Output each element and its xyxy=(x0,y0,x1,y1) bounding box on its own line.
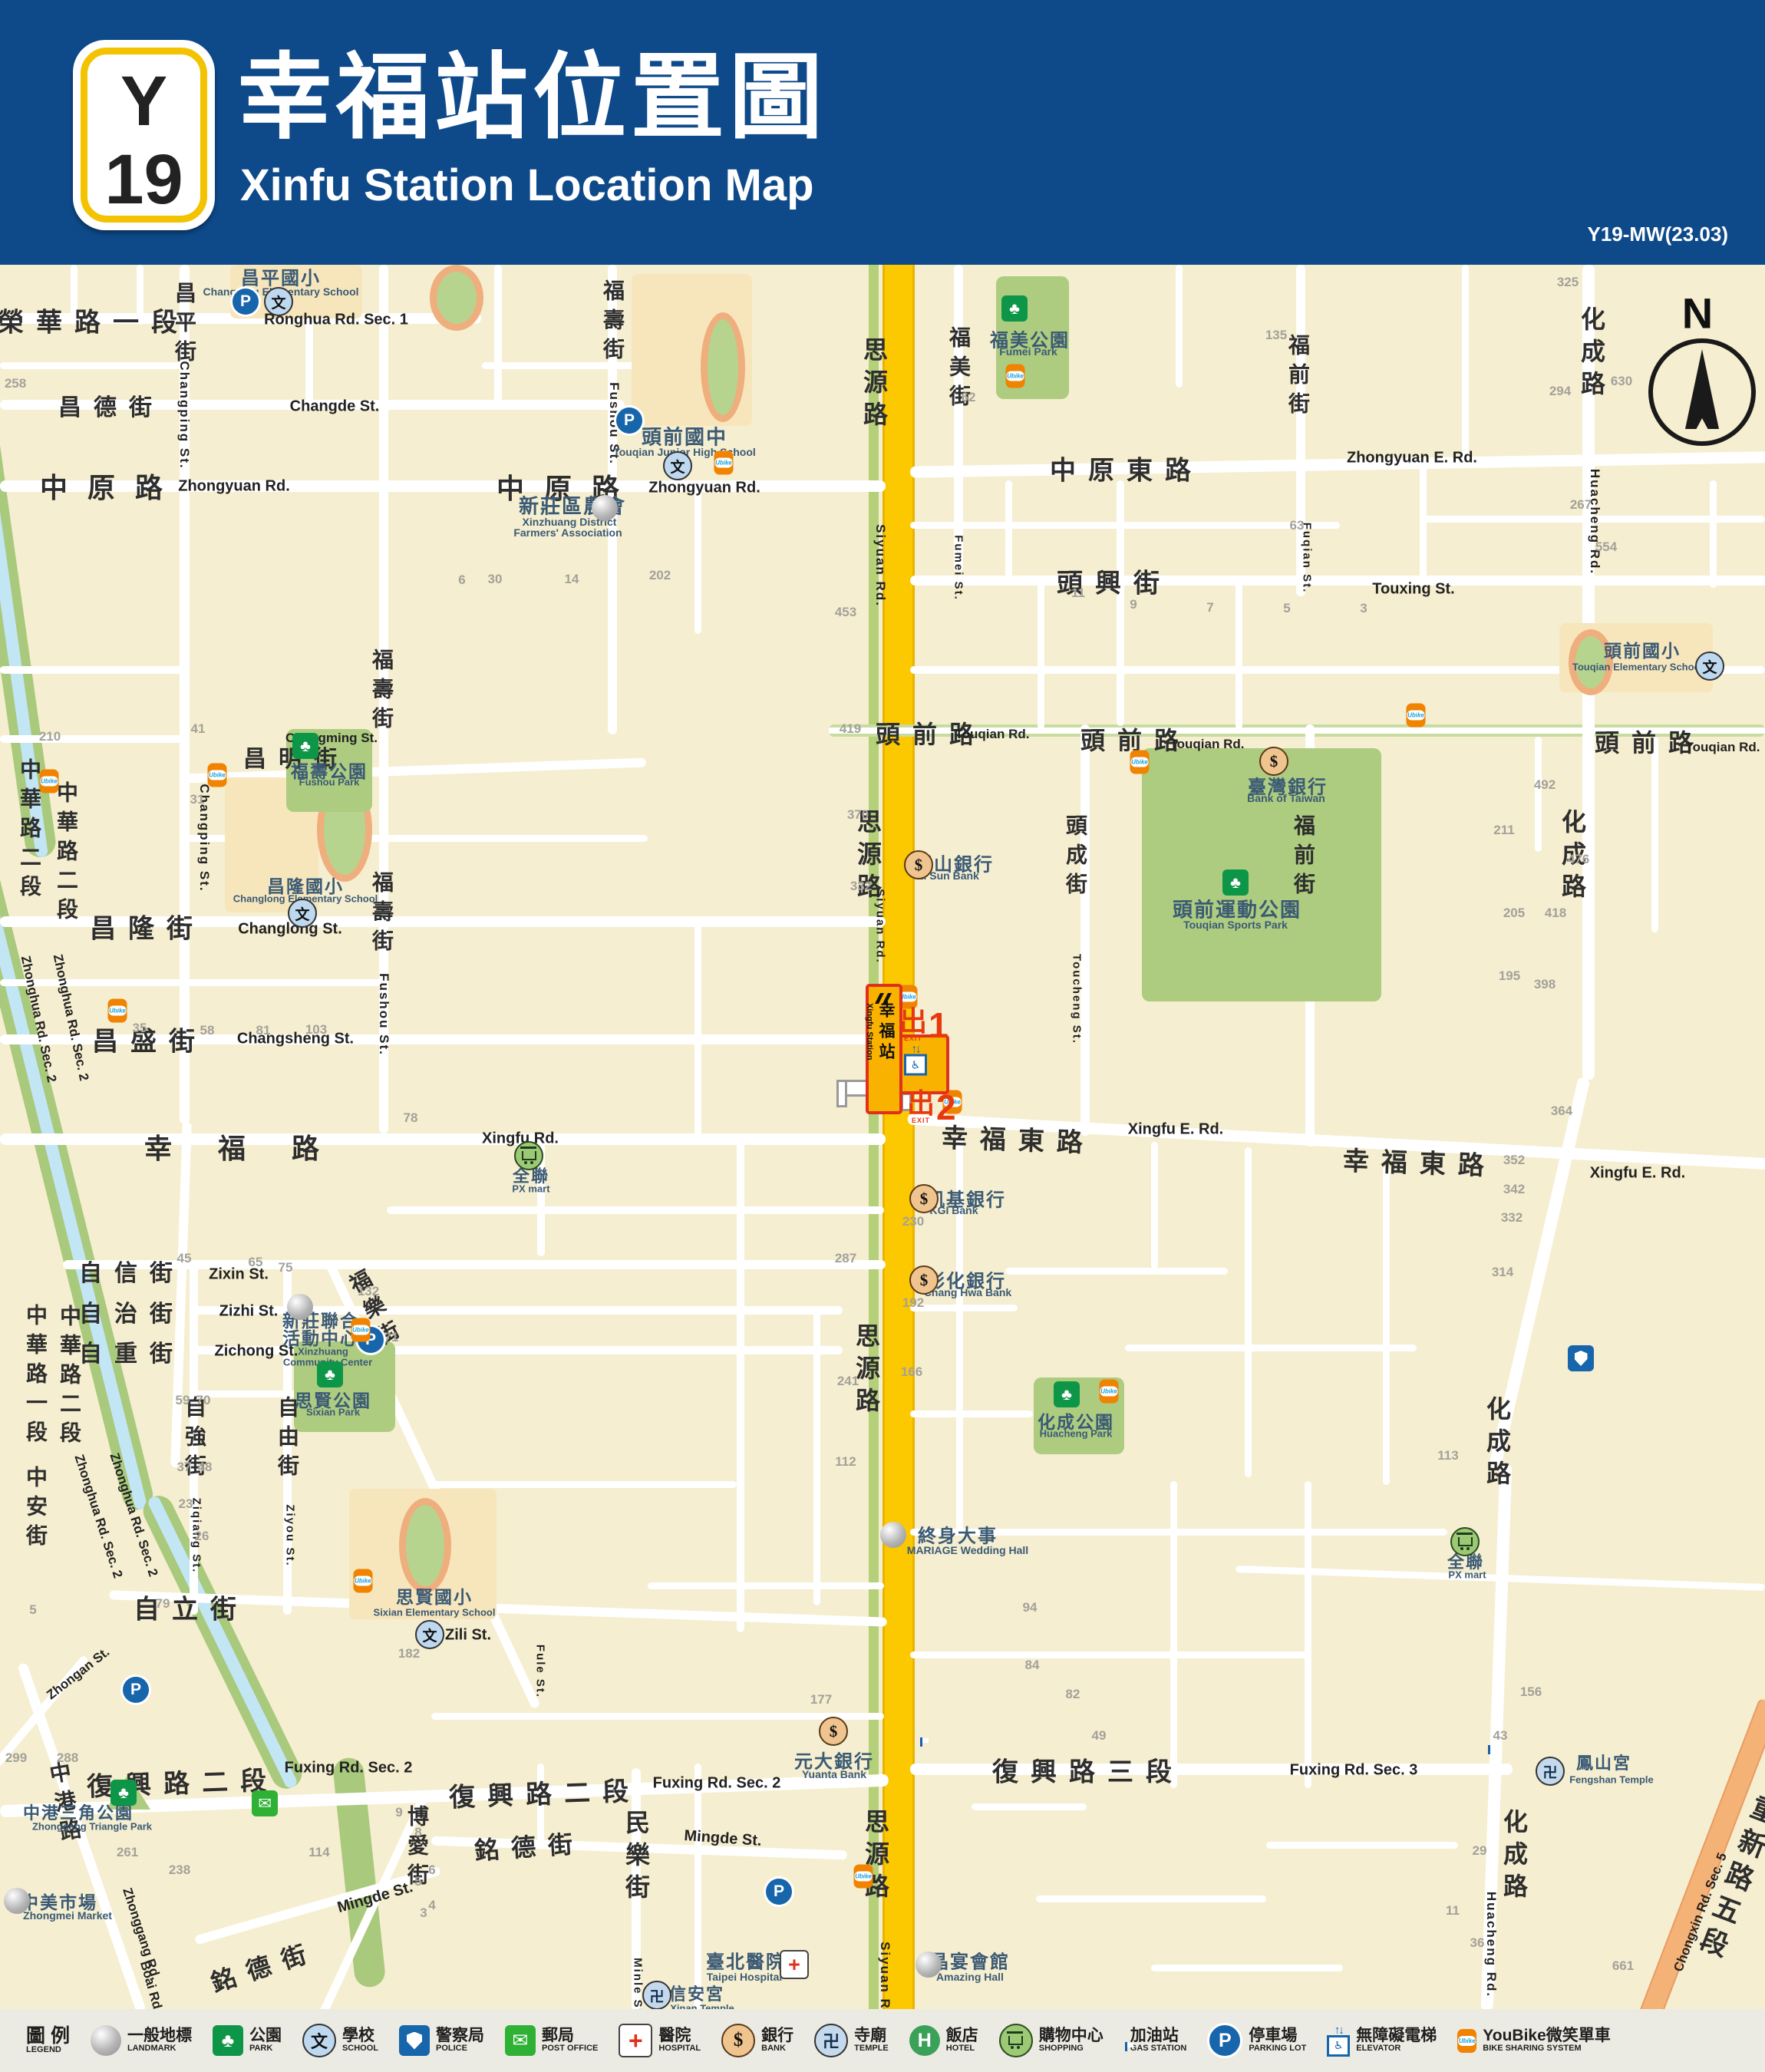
compass-icon xyxy=(1648,338,1756,446)
street-label-zh: 中華路一段 xyxy=(20,1304,51,1450)
street-label-en: Zhongyuan Rd. xyxy=(648,480,760,497)
street-label-en: Huacheng Rd. xyxy=(1483,1892,1499,1998)
street-label-zh: 復興路二段 xyxy=(448,1770,642,1814)
legend-label-en: PARK xyxy=(249,2044,282,2054)
cart-icon xyxy=(514,1141,543,1170)
street-label-zh: 昌平街 xyxy=(169,282,200,369)
road xyxy=(0,735,183,743)
tree-marker: ♣ xyxy=(292,733,318,759)
road xyxy=(1535,737,1542,852)
youbike-icon: Ubike xyxy=(351,1318,371,1342)
youbike-icon: Ubike xyxy=(1130,751,1150,774)
house-number: 205 xyxy=(1503,906,1525,921)
landmark-icon xyxy=(4,1888,30,1914)
road xyxy=(0,1133,886,1145)
parking-icon: P xyxy=(120,1674,151,1705)
tree-icon: ♣ xyxy=(317,1361,343,1387)
street-label-zh: 中華路二段 xyxy=(54,1305,84,1450)
poi-label-en: Zhongmei Market xyxy=(23,1909,112,1922)
street-label-en: Changping St. xyxy=(176,361,192,469)
street-label-zh: 幸福東路 xyxy=(941,1117,1096,1160)
poi-label-en: Fumei Park xyxy=(999,345,1057,358)
hotel-icon: H xyxy=(909,2025,940,2056)
tree-marker: ♣ xyxy=(1001,295,1028,322)
post-icon: ✉ xyxy=(252,1790,278,1816)
poi-label-en: Touqian Sports Park xyxy=(1183,919,1288,931)
legend-label-zh: 停車場 xyxy=(1249,2027,1306,2044)
road xyxy=(1176,265,1183,388)
youbike-icon: Ubike xyxy=(1100,1380,1119,1404)
house-number: 287 xyxy=(835,1251,856,1266)
road xyxy=(1080,724,1090,1136)
poi-label-zh: 頭前國小 xyxy=(1604,636,1681,662)
legend-item-temple: 卍寺廟TEMPLE xyxy=(814,2024,889,2057)
bank-icon: $ xyxy=(909,1184,939,1213)
page-title-zh: 幸福站位置圖 xyxy=(238,21,827,157)
street-label-zh: 民樂街 xyxy=(619,1810,654,1906)
legend-item-bike-sharing-system: UbikeYouBike微笑單車BIKE SHARING SYSTEM xyxy=(1457,2027,1610,2054)
parking-marker: P xyxy=(764,1876,794,1907)
youbike-marker: Ubike xyxy=(854,1865,873,1889)
road xyxy=(694,480,701,634)
hospital-icon: + xyxy=(780,1950,809,1979)
youbike-icon: Ubike xyxy=(714,451,734,475)
street-label-zh: 化成路 xyxy=(1574,306,1609,403)
house-number: 294 xyxy=(1549,384,1571,399)
school-icon: 文 xyxy=(264,287,293,316)
legend-item-landmark: 一般地標LANDMARK xyxy=(91,2025,192,2056)
legend-text: 飯店HOTEL xyxy=(946,2027,978,2054)
road xyxy=(1125,1344,1417,1351)
house-number: 332 xyxy=(850,879,872,894)
hospital-icon: + xyxy=(619,2024,652,2057)
street-label-en: Fuxing Rd. Sec. 2 xyxy=(653,1775,781,1793)
house-number: 78 xyxy=(404,1110,418,1126)
tree-icon: ♣ xyxy=(1001,295,1028,322)
street-label-en: Zhongan St. xyxy=(44,1645,113,1703)
street-label-zh: 昌德街 xyxy=(58,388,164,422)
legend-item-gas-station: 加油站GAS STATION xyxy=(1124,2027,1187,2054)
legend-label-zh: 圖 例 xyxy=(26,2026,70,2046)
station-name-en: Xingfu Station xyxy=(865,1003,874,1061)
road xyxy=(387,1206,884,1214)
parking-marker: P xyxy=(120,1674,151,1705)
house-number: 132 xyxy=(358,1284,379,1299)
road xyxy=(1005,1268,1228,1275)
road xyxy=(1462,265,1469,464)
youbike-icon: Ubike xyxy=(108,999,127,1023)
house-number: 419 xyxy=(840,721,861,737)
house-number: 352 xyxy=(1503,1153,1525,1168)
legend-item-school: 文學校SCHOOL xyxy=(302,2024,378,2057)
street-label-en: Zhonghua Rd. Sec. 2 xyxy=(50,953,92,1083)
legend-label-zh: 加油站 xyxy=(1130,2027,1187,2044)
street-label-zh: 頭成街 xyxy=(1060,814,1090,902)
bank-marker: $ xyxy=(904,850,933,879)
youbike-marker: Ubike xyxy=(1006,365,1025,388)
house-number: 62 xyxy=(962,390,976,405)
poi-label-en: Fushou Park xyxy=(299,777,360,788)
street-label-en: Zili St. xyxy=(445,1627,491,1645)
legend-label-zh: YouBike微笑單車 xyxy=(1483,2027,1610,2044)
legend-label-en: SHOPPING xyxy=(1039,2044,1104,2054)
road xyxy=(813,1306,820,1605)
house-number: 135 xyxy=(1265,328,1287,343)
house-number: 35 xyxy=(133,1021,147,1036)
street-label-zh: 榮華路一段 xyxy=(0,302,190,339)
legend-label-zh: 學校 xyxy=(342,2027,378,2044)
road xyxy=(1151,1965,1343,1971)
legend-text: 寺廟TEMPLE xyxy=(854,2027,889,2054)
poi-label-en: PX mart xyxy=(512,1183,549,1195)
poi-label-en: MARIAGE Wedding Hall xyxy=(907,1544,1028,1556)
running-track xyxy=(399,1498,451,1593)
poi-label-zh: 信安宮 xyxy=(669,1981,724,2005)
street-label-en: Ziyou St. xyxy=(284,1504,297,1566)
page-title-en: Xinfu Station Location Map xyxy=(240,160,814,211)
street-label-zh: 中華路二段 xyxy=(51,781,81,927)
badge-letter: Y xyxy=(73,66,215,137)
youbike-marker: Ubike xyxy=(1100,1380,1119,1404)
house-number: 364 xyxy=(1551,1104,1572,1119)
tree-icon: ♣ xyxy=(213,2025,243,2056)
school-marker: 文 xyxy=(288,899,317,928)
poi-label-en: Huacheng Park xyxy=(1040,1428,1113,1440)
street-label-zh: 自立街 xyxy=(134,1589,249,1626)
legend-item-shopping: 購物中心SHOPPING xyxy=(999,2024,1104,2057)
house-number: 332 xyxy=(1501,1210,1523,1226)
school-marker: 文 xyxy=(1695,652,1724,681)
house-number: 112 xyxy=(835,1454,856,1470)
road xyxy=(494,265,502,403)
street-label-en: Changsheng St. xyxy=(237,1031,354,1048)
tree-icon: ♣ xyxy=(1222,869,1249,896)
street-label-en: Fushou St. xyxy=(376,973,391,1056)
youbike-marker: Ubike xyxy=(108,999,127,1023)
bank-icon: $ xyxy=(1259,747,1288,776)
street-label-en: Touqian Rd. xyxy=(955,727,1030,742)
legend-label-en: POLICE xyxy=(436,2044,484,2054)
cart-marker xyxy=(1450,1527,1480,1556)
road xyxy=(1038,576,1044,729)
legend-text: 購物中心SHOPPING xyxy=(1039,2027,1104,2054)
poi-label-en: Sixian Park xyxy=(306,1407,360,1418)
bank-marker: $ xyxy=(1259,747,1288,776)
road xyxy=(910,1305,1018,1311)
post-icon: ✉ xyxy=(505,2025,536,2056)
legend-label-en: HOSPITAL xyxy=(658,2044,701,2054)
legend-label-en: HOTEL xyxy=(946,2044,978,2054)
street-label-en: Fuxing Rd. Sec. 3 xyxy=(1290,1762,1418,1780)
street-label-zh: 中原東路 xyxy=(1050,450,1203,487)
street-label-zh: 自治街 xyxy=(79,1295,185,1328)
police-icon xyxy=(1568,1345,1594,1371)
legend-label-en: LANDMARK xyxy=(127,2044,192,2054)
road xyxy=(1235,576,1242,729)
poi-label-en: Bank of Taiwan xyxy=(1247,792,1325,804)
house-number: 177 xyxy=(810,1692,832,1707)
street-label-en: Zhongyuan Rd. xyxy=(178,478,290,496)
road xyxy=(972,1803,1087,1810)
legend-label-zh: 一般地標 xyxy=(127,2027,192,2044)
house-number: 79 xyxy=(156,1596,170,1612)
house-number: 230 xyxy=(902,1214,924,1229)
youbike-icon: Ubike xyxy=(1407,704,1426,728)
poi-label-en: Amazing Hall xyxy=(936,1971,1004,1983)
house-number: 8 xyxy=(414,1825,421,1840)
legend-item-police: 警察局POLICE xyxy=(399,2025,484,2056)
landmark-marker xyxy=(4,1888,30,1914)
landmark-marker xyxy=(592,495,618,521)
legend-text: 銀行BANK xyxy=(761,2027,793,2054)
house-number: 210 xyxy=(39,729,61,744)
legend-text: 加油站GAS STATION xyxy=(1130,2027,1187,2054)
street-label-en: Siyuan Rd. xyxy=(874,889,887,964)
school-marker: 文 xyxy=(264,287,293,316)
house-number: 82 xyxy=(1066,1687,1080,1702)
landmark-icon xyxy=(91,2025,121,2056)
house-number: 661 xyxy=(1612,1958,1634,1974)
poi-label-zh: 臺北醫院 xyxy=(706,1947,786,1974)
street-label-en: Toucheng St. xyxy=(1071,954,1084,1044)
house-number: 58 xyxy=(200,1023,215,1038)
legend-text: YouBike微笑單車BIKE SHARING SYSTEM xyxy=(1483,2027,1610,2054)
house-number: 6 xyxy=(428,1862,435,1878)
street-label-zh: 福壽街 xyxy=(366,648,397,736)
street-label-zh: 中原路 xyxy=(40,466,183,506)
legend-text: 醫院HOSPITAL xyxy=(658,2027,701,2054)
poi-label-en: Xinzhuang xyxy=(298,1346,348,1358)
hospital-marker: + xyxy=(780,1950,809,1979)
parking-icon: P xyxy=(230,286,261,317)
street-label-en: Zizhi St. xyxy=(219,1303,279,1321)
station-name-zh: 幸福站 xyxy=(874,1001,897,1064)
street-label-zh: 幸福路 xyxy=(144,1127,365,1166)
house-number: 81 xyxy=(256,1023,271,1038)
poi-label-en: Farmers' Association xyxy=(513,526,622,539)
youbike-icon: Ubike xyxy=(40,770,59,793)
poi-label-en: PX mart xyxy=(1448,1569,1486,1581)
house-number: 418 xyxy=(1545,906,1566,921)
legend-text: 郵局POST OFFICE xyxy=(542,2027,598,2054)
youbike-icon: Ubike xyxy=(1006,365,1025,388)
house-number: 14 xyxy=(565,572,579,587)
temple-icon: 卍 xyxy=(814,2024,848,2057)
legend-text: 警察局POLICE xyxy=(436,2027,484,2054)
house-number: 325 xyxy=(1557,275,1579,290)
road xyxy=(0,666,184,674)
landmark-icon xyxy=(592,495,618,521)
school-icon: 文 xyxy=(1695,652,1724,681)
road xyxy=(910,451,1765,478)
house-number: 31 xyxy=(190,792,205,807)
legend-label-en: PARKING LOT xyxy=(1249,2044,1306,2054)
street-label-zh: 昌隆街 xyxy=(90,908,205,945)
school-icon: 文 xyxy=(415,1620,444,1649)
legend-label-en: BANK xyxy=(761,2044,793,2054)
street-label-en: Siyuan Rd. xyxy=(873,524,888,607)
street-label-en: Fumei St. xyxy=(952,535,965,601)
street-label-zh: 自信街 xyxy=(79,1254,185,1288)
temple-marker: 卍 xyxy=(642,1981,671,2010)
landmark-icon xyxy=(880,1522,906,1548)
legend-item-bank: $銀行BANK xyxy=(721,2024,793,2057)
bank-icon: $ xyxy=(904,850,933,879)
house-number: 6 xyxy=(458,572,465,588)
street-label-en: Xingfu E. Rd. xyxy=(1128,1121,1223,1139)
parking-marker: P xyxy=(230,286,261,317)
police-icon xyxy=(399,2025,430,2056)
legend-text: 公園PARK xyxy=(249,2027,282,2054)
legend-item-post-office: ✉郵局POST OFFICE xyxy=(505,2025,598,2056)
street-label-zh: 化成路 xyxy=(1480,1396,1515,1493)
house-number: 84 xyxy=(1025,1658,1040,1673)
house-number: 94 xyxy=(1023,1600,1038,1615)
road xyxy=(1383,1166,1390,1485)
road xyxy=(0,362,184,369)
header-bar: Y 19 幸福站位置圖 Xinfu Station Location Map Y… xyxy=(0,0,1765,265)
house-number: 49 xyxy=(1092,1728,1107,1744)
legend-item-parking-lot: P停車場PARKING LOT xyxy=(1207,2023,1306,2058)
house-number: 113 xyxy=(1437,1448,1458,1463)
house-number: 75 xyxy=(279,1260,293,1275)
landmark-marker xyxy=(880,1522,906,1548)
legend-label-zh: 無障礙電梯 xyxy=(1356,2027,1437,2044)
house-number: 30 xyxy=(488,572,503,587)
tree-icon: ♣ xyxy=(1054,1381,1080,1407)
house-number: 453 xyxy=(835,605,856,620)
house-number: 103 xyxy=(305,1022,327,1038)
road xyxy=(910,1651,1309,1658)
road xyxy=(431,1713,884,1720)
house-number: 4 xyxy=(428,1898,435,1913)
school-marker: 文 xyxy=(415,1620,444,1649)
house-number: 5 xyxy=(414,1874,421,1889)
house-number: 23 xyxy=(179,1496,193,1512)
street-label-zh: 思源路 xyxy=(858,1809,893,1905)
road xyxy=(1151,1142,1158,1269)
road xyxy=(910,522,1340,529)
tree-marker: ♣ xyxy=(111,1780,137,1806)
house-number: 11 xyxy=(1071,586,1085,601)
poi-label-en: Zhonggang Triangle Park xyxy=(32,1821,152,1833)
tree-icon: ♣ xyxy=(292,733,318,759)
house-number: 29 xyxy=(1473,1843,1487,1859)
legend-text: 圖 例LEGEND xyxy=(26,2026,70,2055)
youbike-marker: Ubike xyxy=(40,770,59,793)
xinfu-station-location-map: Y 19 幸福站位置圖 Xinfu Station Location Map Y… xyxy=(0,0,1765,2072)
house-number: 71 xyxy=(384,1330,399,1345)
street-label-en: Touqian Rd. xyxy=(1686,740,1760,755)
legend-label-zh: 醫院 xyxy=(658,2027,701,2044)
house-number: 37 xyxy=(177,1460,192,1475)
street-label-en: Zhongyuan E. Rd. xyxy=(1347,450,1477,467)
youbike-icon: Ubike xyxy=(208,764,227,787)
poi-label-en: Fengshan Temple xyxy=(1569,1774,1654,1786)
house-number: 59 xyxy=(176,1393,190,1408)
street-label-zh: 銘德街 xyxy=(206,1932,322,1999)
house-number: 9 xyxy=(1130,597,1137,612)
legend-label-en: LEGEND xyxy=(26,2046,70,2055)
badge-number: 19 xyxy=(73,144,215,215)
house-number: 36 xyxy=(1470,1935,1485,1951)
house-number: 211 xyxy=(1493,823,1514,838)
house-number: 238 xyxy=(169,1862,190,1878)
house-number: 342 xyxy=(1503,1182,1525,1197)
street-label-zh: 思源路 xyxy=(856,337,892,434)
youbike-marker: Ubike xyxy=(1407,704,1426,728)
exit-2-label: 出EXIT2 xyxy=(907,1090,956,1125)
legend-label-en: SCHOOL xyxy=(342,2044,378,2054)
house-number: 63 xyxy=(1290,518,1305,533)
house-number: 398 xyxy=(1534,977,1556,992)
youbike-marker: Ubike xyxy=(714,451,734,475)
running-track xyxy=(701,312,745,422)
parking-icon: P xyxy=(1207,2023,1242,2058)
running-track xyxy=(430,265,483,331)
river xyxy=(147,1495,299,1790)
house-number: 3 xyxy=(420,1905,427,1921)
house-number: 7 xyxy=(1206,600,1213,615)
street-label-en: Fuxing Rd. Sec. 2 xyxy=(285,1760,413,1777)
house-number: 156 xyxy=(1520,1684,1542,1700)
landmark-icon xyxy=(287,1294,313,1320)
legend-bar: 圖 例LEGEND一般地標LANDMARK♣公園PARK文學校SCHOOL警察局… xyxy=(0,2009,1765,2072)
tree-marker: ♣ xyxy=(1054,1381,1080,1407)
youbike-icon: Ubike xyxy=(354,1569,373,1593)
road xyxy=(1710,480,1717,588)
house-number: 41 xyxy=(191,721,206,737)
road xyxy=(1305,1481,1311,1788)
road xyxy=(648,1582,884,1589)
legend-text: 無障礙電梯ELEVATOR xyxy=(1356,2027,1437,2054)
youbike-marker: Ubike xyxy=(351,1318,371,1342)
parking-marker: P xyxy=(614,405,645,436)
bank-marker: $ xyxy=(909,1184,939,1213)
legend-text: 學校SCHOOL xyxy=(342,2027,378,2054)
legend-label-en: BIKE SHARING SYSTEM xyxy=(1483,2044,1610,2054)
road xyxy=(1245,1147,1252,1477)
elevator-icon: ↑↓♿ xyxy=(904,1044,927,1076)
legend-item-park: ♣公園PARK xyxy=(213,2025,282,2056)
street-label-zh: 中安街 xyxy=(20,1466,51,1553)
house-number: 554 xyxy=(1595,539,1617,555)
bank-icon: $ xyxy=(909,1265,939,1295)
street-label-zh: 福前街 xyxy=(1288,814,1318,902)
house-number: 492 xyxy=(1534,777,1556,793)
house-number: 65 xyxy=(249,1255,263,1270)
legend-item-elevator: ↑↓♿無障礙電梯ELEVATOR xyxy=(1327,2025,1437,2057)
legend-item-hospital: +醫院HOSPITAL xyxy=(619,2024,701,2057)
house-number: 630 xyxy=(1611,374,1632,389)
map-version-code: Y19-MW(23.03) xyxy=(1588,223,1729,246)
compass-north-label: N xyxy=(1682,289,1713,338)
legend-label-en: POST OFFICE xyxy=(542,2044,598,2054)
tree-marker: ♣ xyxy=(1222,869,1249,896)
road xyxy=(910,1410,1033,1417)
house-number: 288 xyxy=(57,1750,78,1766)
school-icon: 文 xyxy=(663,451,692,480)
street-label-en: Fule St. xyxy=(534,1645,547,1698)
road xyxy=(1651,737,1658,932)
poi-label-zh: 鳳山宮 xyxy=(1576,1750,1631,1774)
poi-label-zh: 晶宴會館 xyxy=(930,1947,1010,1974)
road xyxy=(694,916,701,1139)
bank-icon: $ xyxy=(819,1717,848,1746)
house-number: 261 xyxy=(117,1845,138,1860)
poi-label-en: Touqian Elementary School xyxy=(1572,662,1703,673)
youbike-marker: Ubike xyxy=(208,764,227,787)
